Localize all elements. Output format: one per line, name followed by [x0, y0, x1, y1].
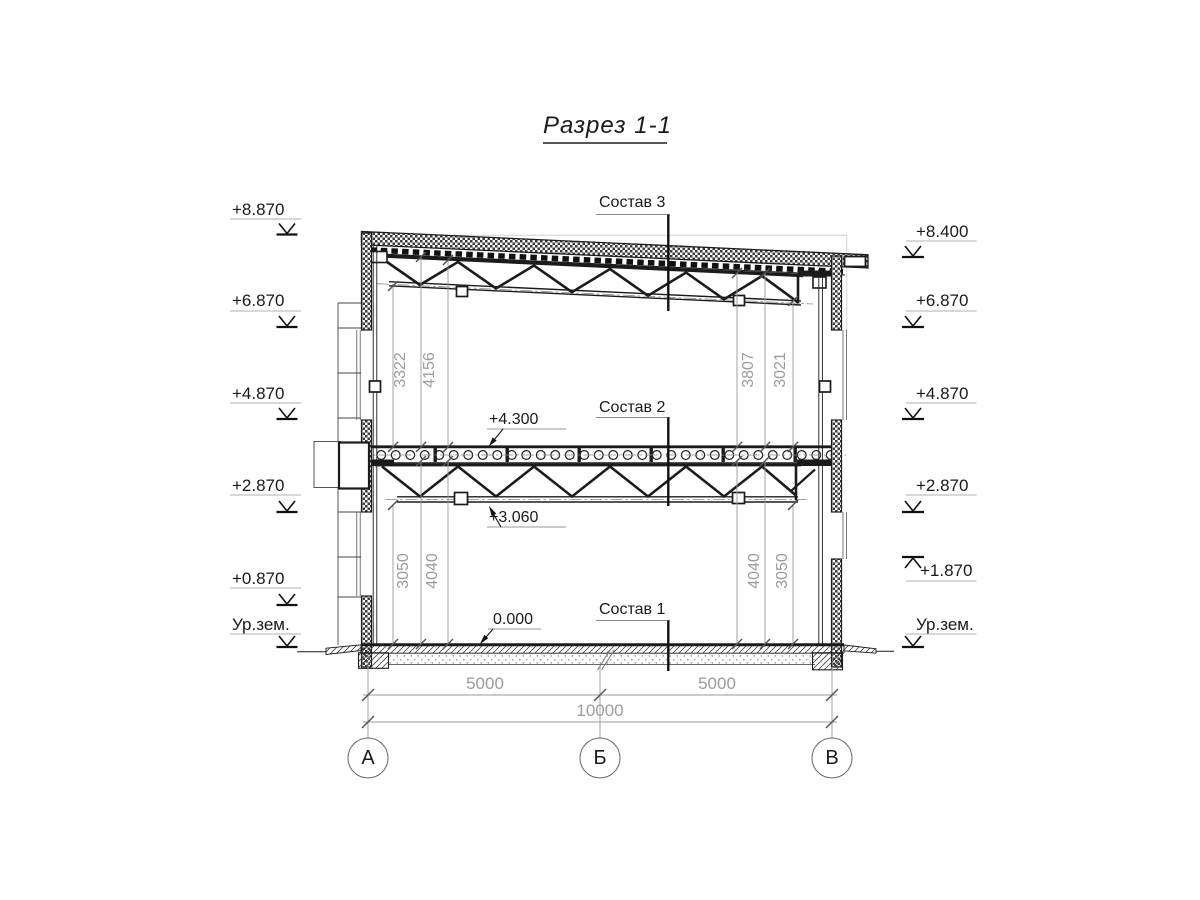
truss-bearing-left: [370, 252, 387, 263]
wall-console: [339, 443, 369, 489]
label-sostav-2: Состав 2: [599, 400, 665, 416]
section-drawing-sheet: Разрез 1-1 Состав 3 Состав 2 Состав 1 +8…: [0, 0, 1200, 900]
floor-truss: [370, 460, 833, 505]
dim-upper-left-0: 3322: [393, 340, 409, 400]
roof-assembly: [362, 232, 869, 276]
floor-slab: [358, 447, 846, 463]
truss-seat-right: [797, 460, 833, 467]
label-sostav-1: Состав 1: [599, 602, 665, 618]
dim-total: 10000: [565, 702, 635, 719]
level-ground-floor: 0.000: [493, 612, 533, 628]
dim-lower-right-1: 3050: [775, 541, 791, 601]
foundation-left: [359, 653, 389, 669]
elevation-left-0: +8.870: [232, 201, 284, 218]
dim-lower-right-0: 4040: [747, 541, 763, 601]
elevation-left-4: +0.870: [232, 570, 284, 587]
ground-floor: [297, 645, 894, 670]
dim-upper-right-1: 3021: [773, 340, 789, 400]
elevation-right-0: +8.400: [916, 223, 968, 240]
chord-splice: [734, 296, 745, 306]
dim-upper-left-1: 4156: [422, 340, 438, 400]
drawing-title: Разрез 1-1: [543, 114, 667, 144]
axis-label-a: А: [353, 748, 383, 768]
elevation-right-2: +4.870: [916, 385, 968, 402]
label-sostav-3: Состав 3: [599, 195, 665, 211]
elevation-right-ground: Ур.зем.: [916, 616, 974, 633]
dim-span-1: 5000: [455, 675, 515, 692]
apron-right: [844, 645, 876, 653]
level-truss2-bottom: +3.060: [489, 510, 538, 526]
axis-label-b: Б: [585, 748, 615, 768]
connection-clip: [370, 381, 381, 392]
level-floor2-top: +4.300: [489, 412, 538, 428]
chord-splice: [455, 493, 468, 505]
dim-span-2: 5000: [687, 675, 747, 692]
left-wall: [314, 233, 381, 667]
connection-clip: [820, 381, 831, 392]
foundation-right: [813, 653, 843, 670]
elevation-right-1: +6.870: [916, 292, 968, 309]
chord-splice: [733, 493, 745, 504]
chord-splice: [457, 287, 468, 297]
dim-upper-right-0: 3807: [741, 340, 757, 400]
elevation-right-3: +2.870: [916, 477, 968, 494]
roof-edge-beam: [845, 257, 866, 267]
elevation-left-1: +6.870: [232, 292, 284, 309]
elevation-left-ground: Ур.зем.: [232, 616, 290, 633]
dim-lower-left-0: 3050: [396, 541, 412, 601]
elevation-left-2: +4.870: [232, 385, 284, 402]
axis-label-v: В: [817, 748, 847, 768]
dim-lower-left-1: 4040: [425, 541, 441, 601]
apron-left: [326, 645, 362, 655]
elevation-right-4: +1.870: [920, 562, 972, 579]
elevation-left-3: +2.870: [232, 477, 284, 494]
truss-bearing-right: [798, 271, 834, 277]
wall-console: [314, 442, 340, 488]
